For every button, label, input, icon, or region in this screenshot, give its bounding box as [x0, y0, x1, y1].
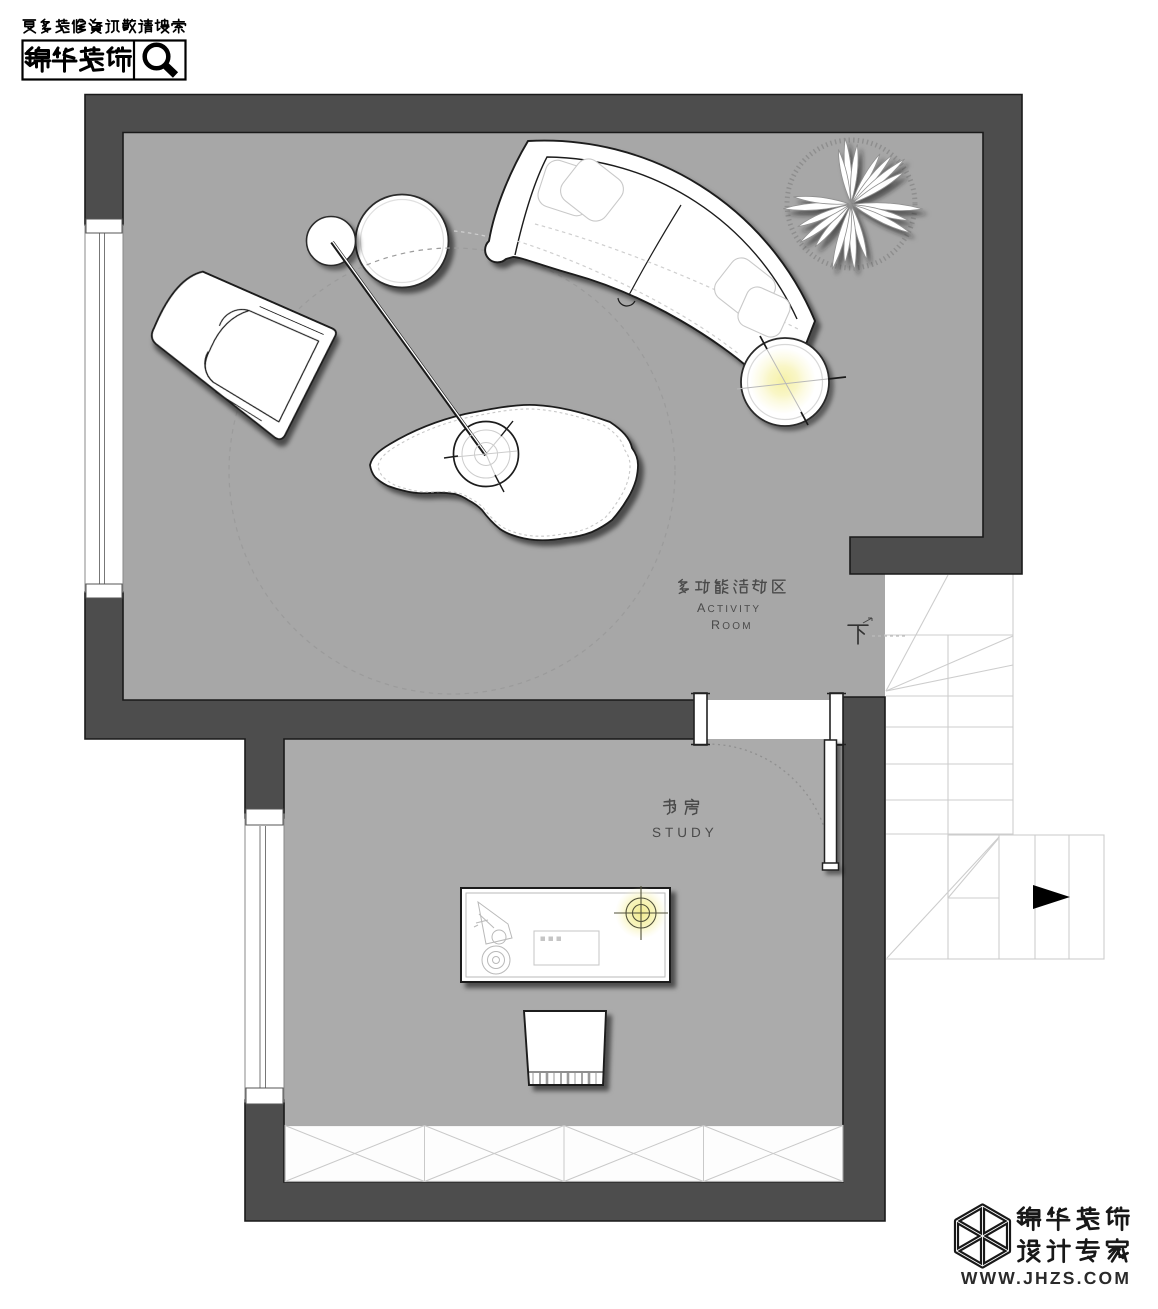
svg-text:ROOM: ROOM [711, 618, 753, 632]
svg-text:ACTIVITY: ACTIVITY [697, 601, 761, 615]
svg-text:WWW.JHZS.COM: WWW.JHZS.COM [961, 1268, 1131, 1288]
svg-text:STUDY: STUDY [652, 825, 718, 840]
